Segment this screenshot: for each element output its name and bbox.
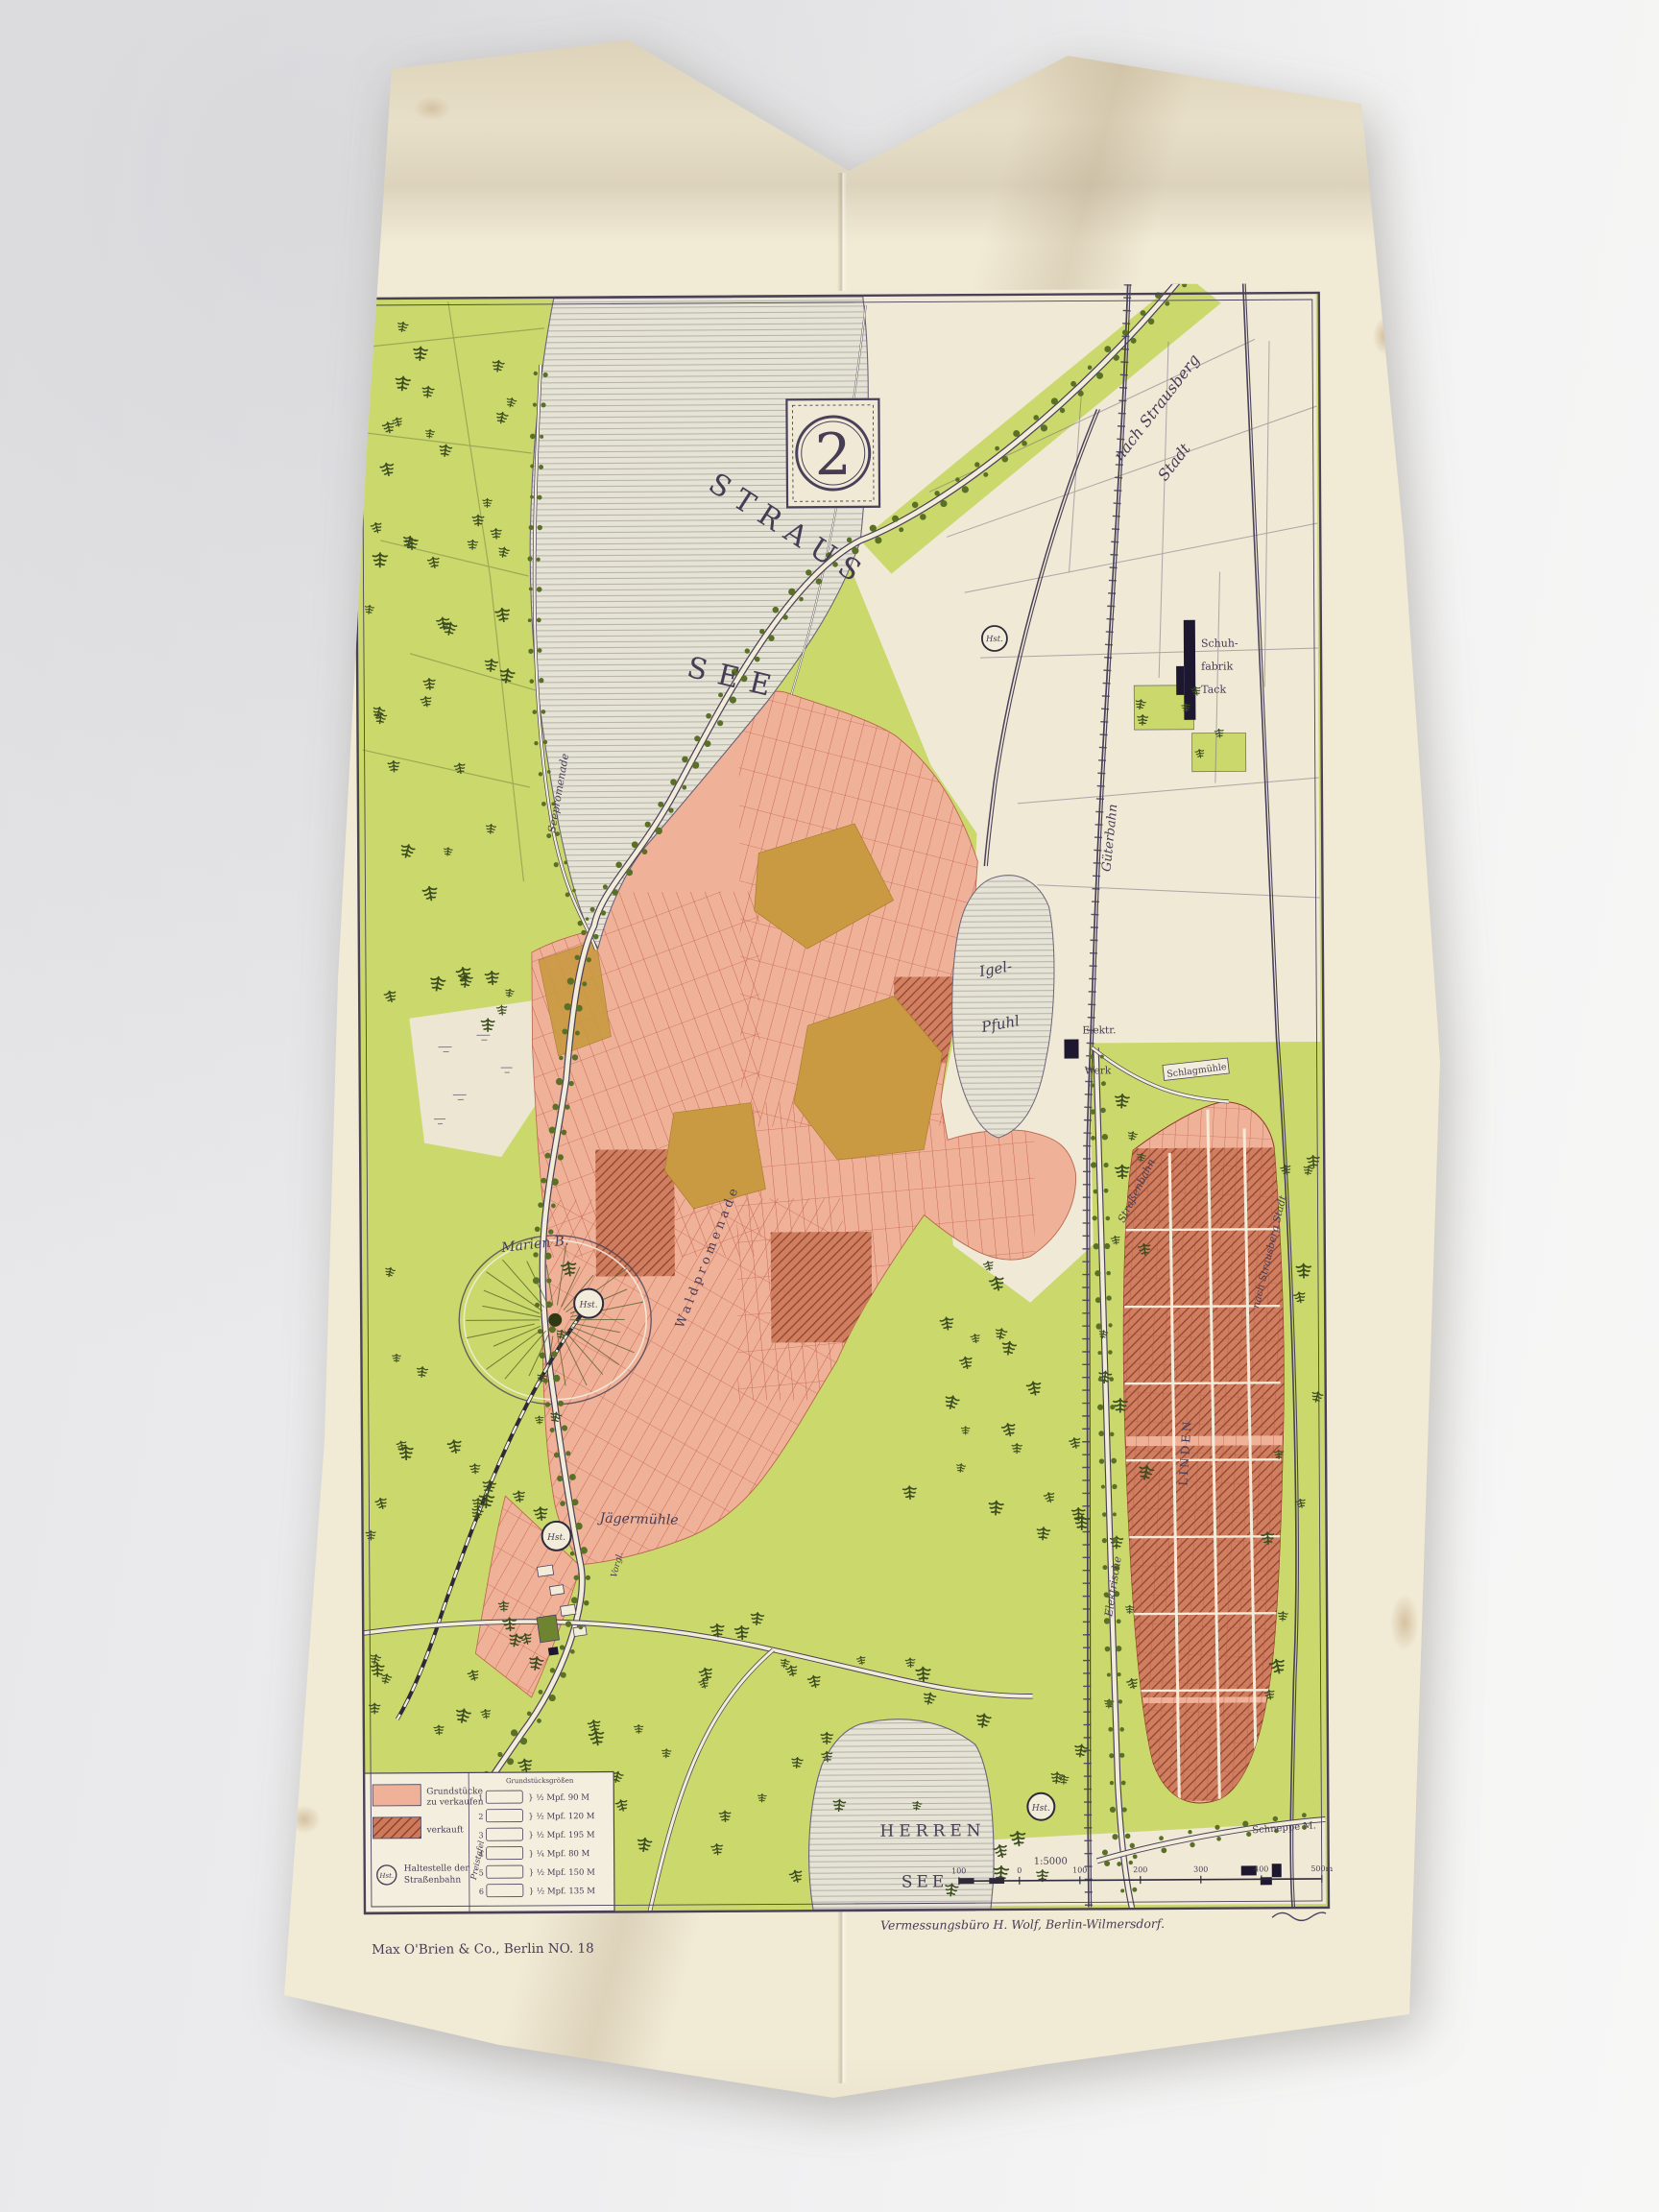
- legend-box: Hst. Grundstücke zu verkaufen verkauft H…: [364, 1771, 614, 1912]
- svg-text:} ½ Mpf. 90 M: } ½ Mpf. 90 M: [528, 1792, 589, 1803]
- plate-number: 2: [814, 421, 852, 489]
- svg-text:} ½ Mpf. 120 M: } ½ Mpf. 120 M: [528, 1811, 594, 1821]
- svg-text:200: 200: [1133, 1865, 1147, 1874]
- engraver-signature: [1272, 1912, 1326, 1921]
- photo-backdrop: 1000100200300400500m Hst. Grundstücke zu…: [0, 0, 1659, 2212]
- svg-text:5: 5: [479, 1868, 484, 1877]
- svg-text:100: 100: [951, 1866, 966, 1875]
- folded-map-paper: 1000100200300400500m Hst. Grundstücke zu…: [0, 0, 1659, 2212]
- legend-price-header: Grundstücksgrößen: [506, 1777, 574, 1785]
- svg-text:400: 400: [1254, 1864, 1268, 1873]
- foxing-spot: [1373, 317, 1398, 355]
- svg-text:} ½ Mpf. 195 M: } ½ Mpf. 195 M: [528, 1830, 594, 1840]
- imprint-publisher: Max O'Brien & Co., Berlin NO. 18: [372, 1941, 594, 1958]
- foxing-spot: [413, 96, 451, 121]
- svg-text:} ¼ Mpf. 80 M: } ¼ Mpf. 80 M: [529, 1848, 590, 1859]
- printed-map: 1000100200300400500m Hst. Grundstücke zu…: [352, 283, 1334, 1964]
- legend-for-sale-1: Grundstücke: [426, 1787, 483, 1796]
- legend-for-sale-2: zu verkaufen: [426, 1797, 483, 1807]
- svg-text:0: 0: [1017, 1866, 1022, 1875]
- marienberg-summit: [548, 1313, 562, 1327]
- svg-text:300: 300: [1193, 1865, 1208, 1874]
- stop-label-hst: Hst.: [1031, 1804, 1050, 1814]
- herrensee-label-2: SEE: [902, 1872, 949, 1891]
- foxing-spot: [288, 1805, 321, 1834]
- svg-text:1: 1: [478, 1793, 483, 1802]
- legend-sold-label: verkauft: [425, 1825, 464, 1835]
- imprint-surveyor: Vermessungsbüro H. Wolf, Berlin-Wilmersd…: [880, 1916, 1165, 1933]
- factory-label-2: fabrik: [1201, 661, 1234, 673]
- mill-label-jaegermuehle: Jägermühle: [596, 1510, 678, 1527]
- factory-label-1: Schuh-: [1201, 637, 1238, 649]
- map-sheet: 1000100200300400500m Hst. Grundstücke zu…: [0, 0, 1659, 2212]
- plate-number-badge: 2: [786, 399, 879, 508]
- svg-text:} ½ Mpf. 150 M: } ½ Mpf. 150 M: [529, 1867, 595, 1878]
- stop-label-hst: Hst.: [579, 1301, 598, 1310]
- legend-stop-abbrev: Hst.: [378, 1872, 394, 1880]
- stop-label-hst: Hst.: [546, 1533, 565, 1543]
- legend-swatch-sold: [373, 1817, 421, 1839]
- map-artwork: 1000100200300400500m Hst. Grundstücke zu…: [352, 283, 1334, 1964]
- svg-text:4: 4: [479, 1850, 484, 1859]
- power-label-2: Werk: [1085, 1065, 1112, 1076]
- legend-stop-2: Straßenbahn: [404, 1875, 462, 1885]
- svg-text:6: 6: [479, 1887, 484, 1896]
- svg-text:2: 2: [478, 1813, 483, 1821]
- elektrizitaetswerk-building: [1064, 1039, 1078, 1058]
- scale-ratio: 1:5000: [1034, 1857, 1068, 1867]
- stop-label-hst: Hst.: [985, 635, 1003, 644]
- foxing-spot: [1390, 1594, 1419, 1651]
- svg-text:} ½ Mpf. 135 M: } ½ Mpf. 135 M: [529, 1886, 595, 1896]
- factory-label-3: Tack: [1201, 684, 1226, 696]
- legend-stop-1: Haltestelle der: [404, 1863, 470, 1873]
- power-label-1: Elektr.: [1082, 1024, 1116, 1036]
- svg-text:100: 100: [1072, 1865, 1087, 1874]
- svg-text:3: 3: [478, 1831, 483, 1839]
- legend-swatch-for-sale: [373, 1785, 421, 1806]
- herrensee-label-1: HERREN: [879, 1821, 985, 1841]
